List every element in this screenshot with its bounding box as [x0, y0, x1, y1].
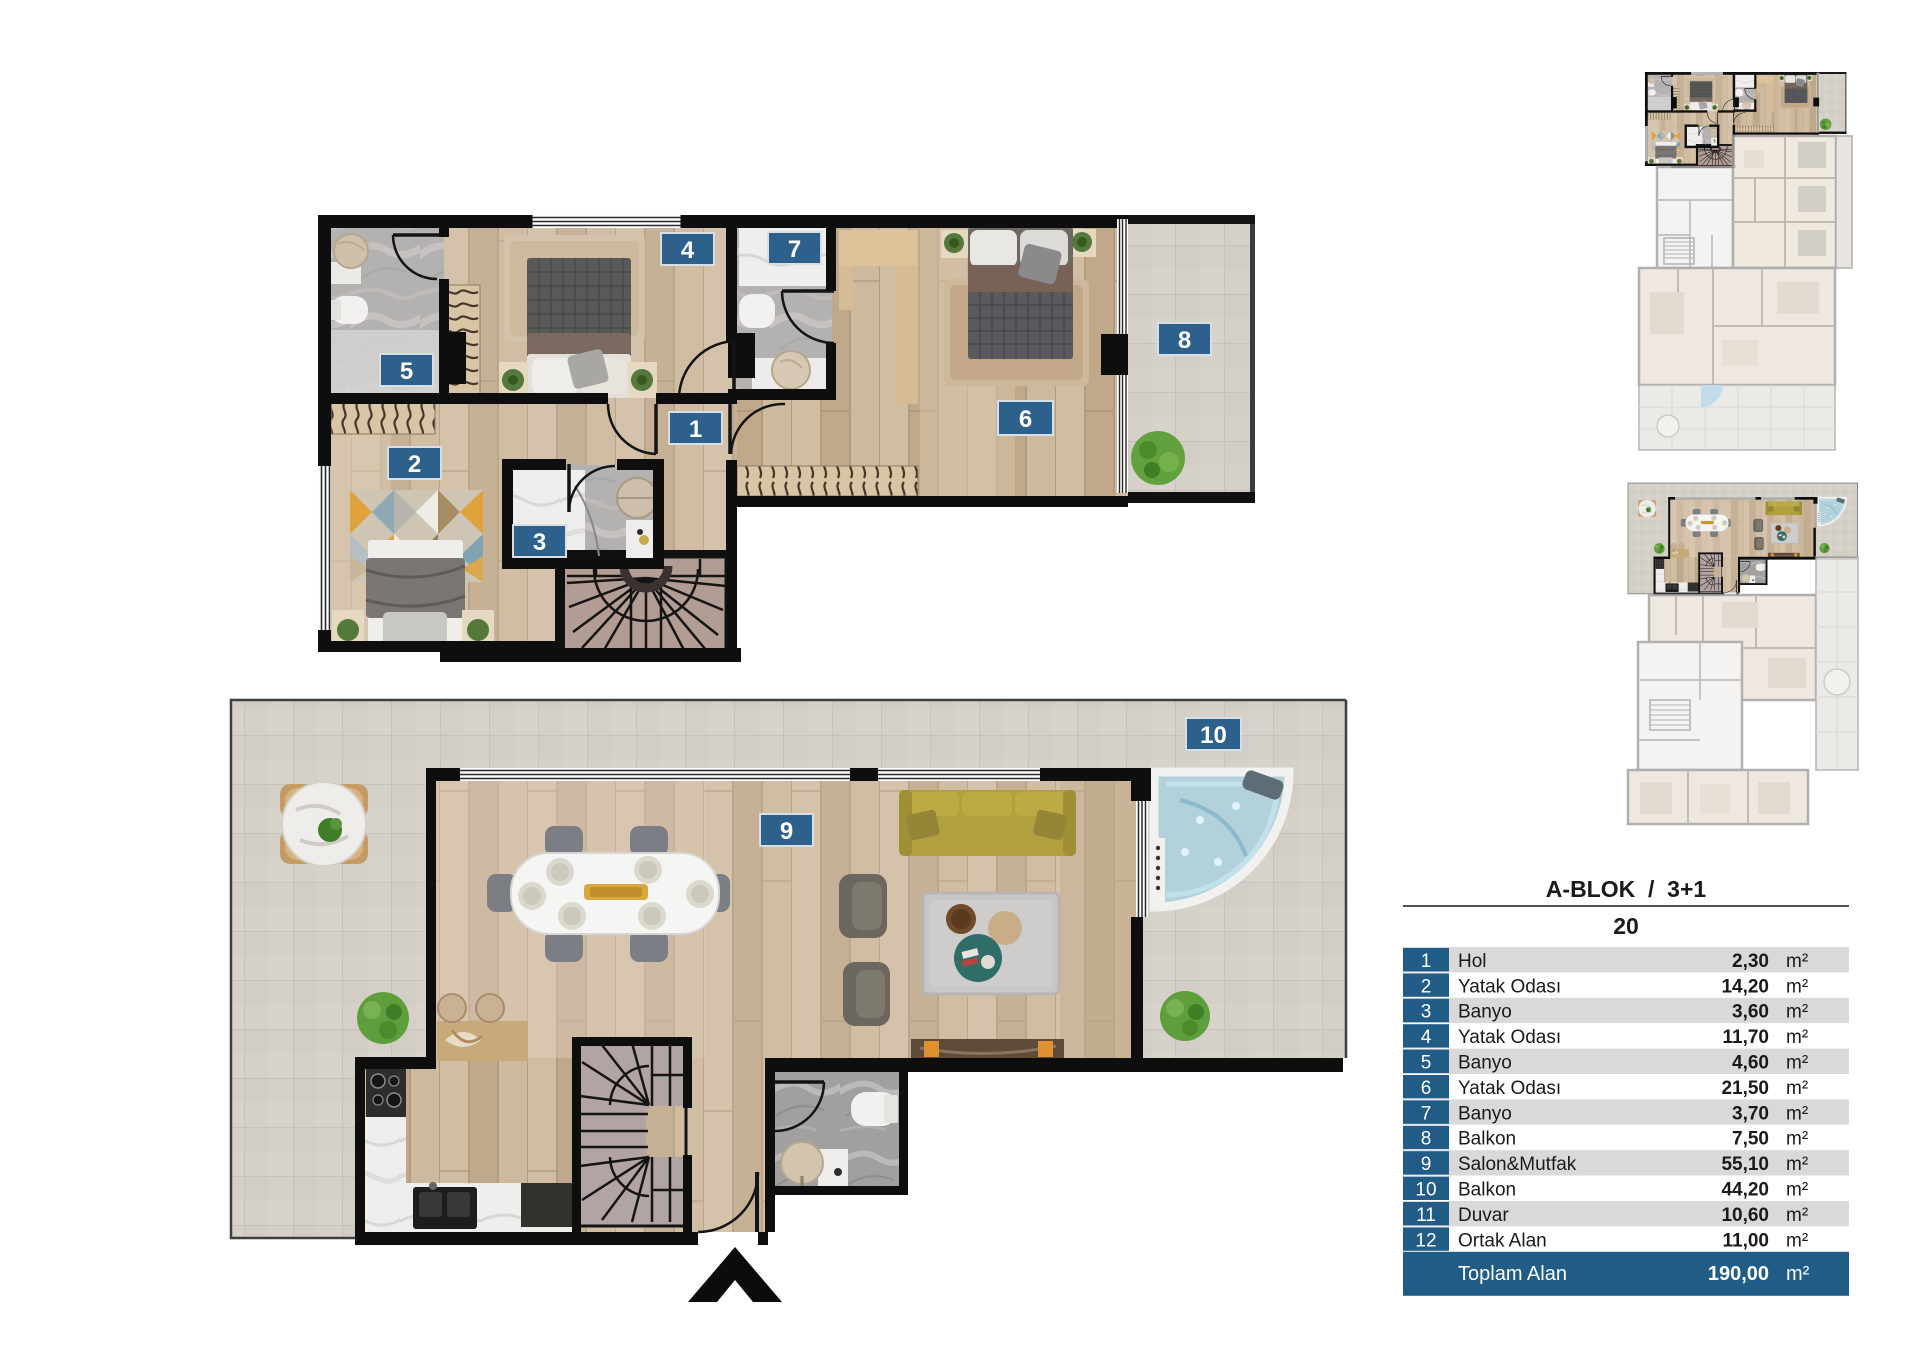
svg-text:Yatak Odası: Yatak Odası: [1458, 1078, 1561, 1099]
svg-text:Ortak Alan: Ortak Alan: [1458, 1230, 1547, 1251]
svg-text:Duvar: Duvar: [1458, 1205, 1509, 1226]
svg-text:3,60: 3,60: [1732, 1002, 1769, 1023]
svg-text:4: 4: [1421, 1027, 1432, 1048]
svg-text:4: 4: [681, 237, 695, 264]
svg-text:10: 10: [1200, 722, 1227, 749]
svg-text:Hol: Hol: [1458, 951, 1487, 972]
svg-text:14,20: 14,20: [1721, 976, 1769, 997]
svg-text:8: 8: [1421, 1129, 1432, 1150]
svg-text:m²: m²: [1786, 1230, 1808, 1251]
svg-text:5: 5: [400, 358, 413, 385]
svg-text:Yatak Odası: Yatak Odası: [1458, 1027, 1561, 1048]
svg-text:11,00: 11,00: [1723, 1230, 1770, 1251]
svg-text:m²: m²: [1786, 1002, 1808, 1023]
svg-text:6: 6: [1019, 406, 1032, 433]
svg-text:21,50: 21,50: [1721, 1078, 1769, 1099]
svg-text:3: 3: [1421, 1002, 1432, 1023]
svg-text:1: 1: [689, 416, 702, 443]
svg-text:7: 7: [788, 236, 801, 263]
svg-text:m²: m²: [1786, 1154, 1808, 1175]
svg-text:190,00: 190,00: [1708, 1263, 1769, 1285]
svg-text:Balkon: Balkon: [1458, 1180, 1516, 1201]
svg-text:9: 9: [780, 818, 793, 845]
svg-text:3: 3: [533, 529, 546, 556]
svg-text:20: 20: [1613, 913, 1639, 939]
svg-text:7: 7: [1421, 1103, 1432, 1124]
svg-text:2: 2: [1421, 976, 1432, 997]
svg-text:3,70: 3,70: [1732, 1103, 1769, 1124]
svg-text:Salon&Mutfak: Salon&Mutfak: [1458, 1154, 1577, 1175]
svg-text:4,60: 4,60: [1732, 1053, 1769, 1074]
svg-text:44,20: 44,20: [1721, 1180, 1769, 1201]
svg-text:m²: m²: [1786, 1263, 1810, 1285]
svg-text:5: 5: [1421, 1053, 1432, 1074]
svg-text:Balkon: Balkon: [1458, 1129, 1516, 1150]
svg-text:55,10: 55,10: [1721, 1154, 1769, 1175]
svg-text:Banyo: Banyo: [1458, 1103, 1512, 1124]
svg-text:m²: m²: [1786, 951, 1808, 972]
svg-text:2: 2: [408, 451, 421, 478]
svg-text:Yatak Odası: Yatak Odası: [1458, 976, 1561, 997]
svg-text:2,30: 2,30: [1732, 951, 1769, 972]
svg-text:12: 12: [1415, 1230, 1436, 1251]
svg-text:A-BLOK / 3+1: A-BLOK / 3+1: [1546, 876, 1707, 902]
svg-text:m²: m²: [1786, 1129, 1808, 1150]
svg-text:m²: m²: [1786, 976, 1808, 997]
svg-text:1: 1: [1421, 951, 1432, 972]
svg-text:m²: m²: [1786, 1205, 1808, 1226]
svg-text:m²: m²: [1786, 1027, 1808, 1048]
svg-text:m²: m²: [1786, 1053, 1808, 1074]
svg-text:11,70: 11,70: [1723, 1027, 1770, 1048]
svg-text:m²: m²: [1786, 1078, 1808, 1099]
svg-text:11: 11: [1416, 1205, 1436, 1226]
svg-text:m²: m²: [1786, 1103, 1808, 1124]
svg-text:10,60: 10,60: [1721, 1205, 1769, 1226]
svg-text:Banyo: Banyo: [1458, 1053, 1512, 1074]
svg-text:10: 10: [1415, 1180, 1436, 1201]
svg-text:6: 6: [1421, 1078, 1432, 1099]
svg-text:Toplam Alan: Toplam Alan: [1458, 1263, 1567, 1285]
svg-text:Banyo: Banyo: [1458, 1002, 1512, 1023]
svg-text:9: 9: [1421, 1154, 1432, 1175]
svg-text:7,50: 7,50: [1732, 1129, 1769, 1150]
svg-text:8: 8: [1178, 327, 1191, 354]
svg-text:m²: m²: [1786, 1180, 1808, 1201]
